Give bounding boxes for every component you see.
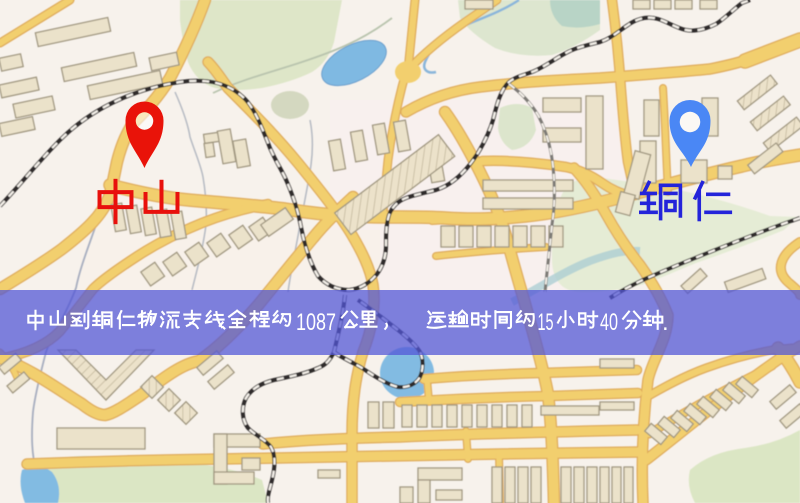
svg-text:.: . [662, 309, 669, 336]
svg-text:40: 40 [600, 309, 618, 336]
svg-text:15: 15 [538, 309, 554, 336]
svg-text:1087: 1087 [296, 309, 336, 336]
